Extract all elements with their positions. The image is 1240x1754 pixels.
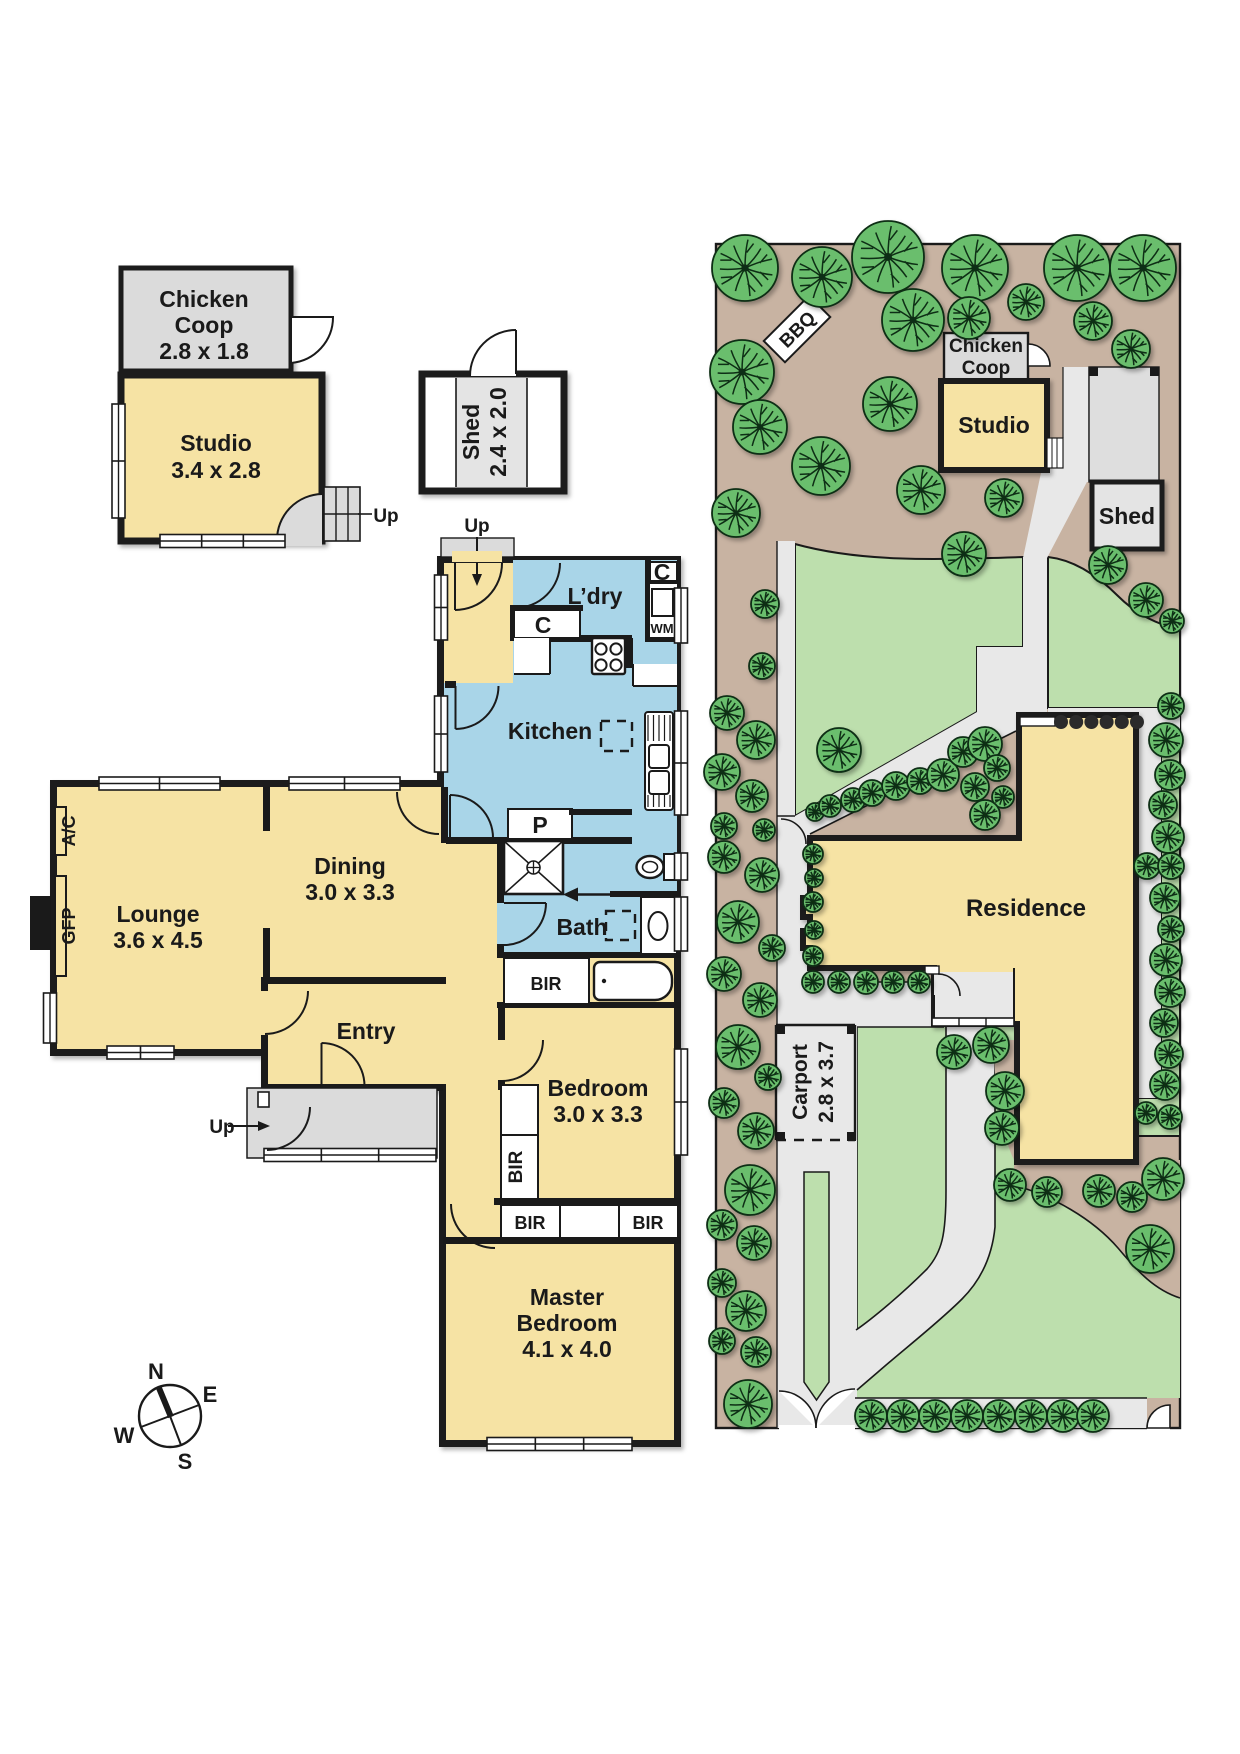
svg-text:W: W [114, 1423, 135, 1448]
svg-text:S: S [178, 1449, 193, 1474]
svg-text:Bath: Bath [556, 914, 607, 940]
svg-text:BIR: BIR [515, 1213, 546, 1233]
svg-text:BIR: BIR [506, 1150, 527, 1183]
svg-text:Up: Up [373, 506, 398, 527]
svg-text:Entry: Entry [337, 1018, 396, 1044]
svg-text:A/C: A/C [59, 816, 79, 847]
svg-text:Lounge: Lounge [116, 901, 199, 927]
svg-text:2.8 x 3.7: 2.8 x 3.7 [815, 1041, 838, 1123]
svg-text:3.0 x 3.3: 3.0 x 3.3 [553, 1101, 643, 1127]
svg-text:BIR: BIR [633, 1213, 664, 1233]
svg-text:Studio: Studio [180, 430, 252, 456]
svg-text:Kitchen: Kitchen [508, 718, 592, 744]
svg-text:Chicken: Chicken [949, 336, 1023, 357]
svg-text:2.4 x 2.0: 2.4 x 2.0 [485, 387, 511, 477]
svg-text:Coop: Coop [175, 312, 234, 338]
svg-text:Studio: Studio [958, 412, 1030, 438]
svg-text:Residence: Residence [966, 895, 1086, 922]
svg-text:4.1 x 4.0: 4.1 x 4.0 [522, 1336, 612, 1362]
svg-text:3.4 x 2.8: 3.4 x 2.8 [171, 457, 261, 483]
svg-text:Bedroom: Bedroom [517, 1310, 618, 1336]
svg-text:P: P [532, 812, 547, 838]
svg-text:GFP: GFP [59, 907, 79, 944]
svg-text:Chicken: Chicken [159, 286, 248, 312]
svg-text:Dining: Dining [314, 853, 386, 879]
svg-text:Shed: Shed [1099, 503, 1155, 529]
svg-text:Master: Master [530, 1284, 604, 1310]
svg-text:C: C [654, 559, 671, 585]
svg-text:Up: Up [464, 516, 489, 537]
svg-text:Shed: Shed [458, 404, 484, 460]
svg-text:Bedroom: Bedroom [548, 1075, 649, 1101]
svg-text:Coop: Coop [962, 358, 1011, 379]
svg-text:3.0 x 3.3: 3.0 x 3.3 [305, 879, 395, 905]
svg-text:E: E [203, 1382, 218, 1407]
svg-text:L’dry: L’dry [568, 583, 623, 609]
svg-text:BIR: BIR [531, 974, 562, 994]
svg-text:WM: WM [650, 621, 673, 636]
svg-text:C: C [535, 612, 552, 638]
svg-text:Carport: Carport [789, 1044, 812, 1120]
svg-text:3.6 x 4.5: 3.6 x 4.5 [113, 927, 203, 953]
svg-text:Up: Up [209, 1117, 234, 1138]
svg-text:2.8 x 1.8: 2.8 x 1.8 [159, 338, 249, 364]
svg-text:N: N [148, 1359, 164, 1384]
